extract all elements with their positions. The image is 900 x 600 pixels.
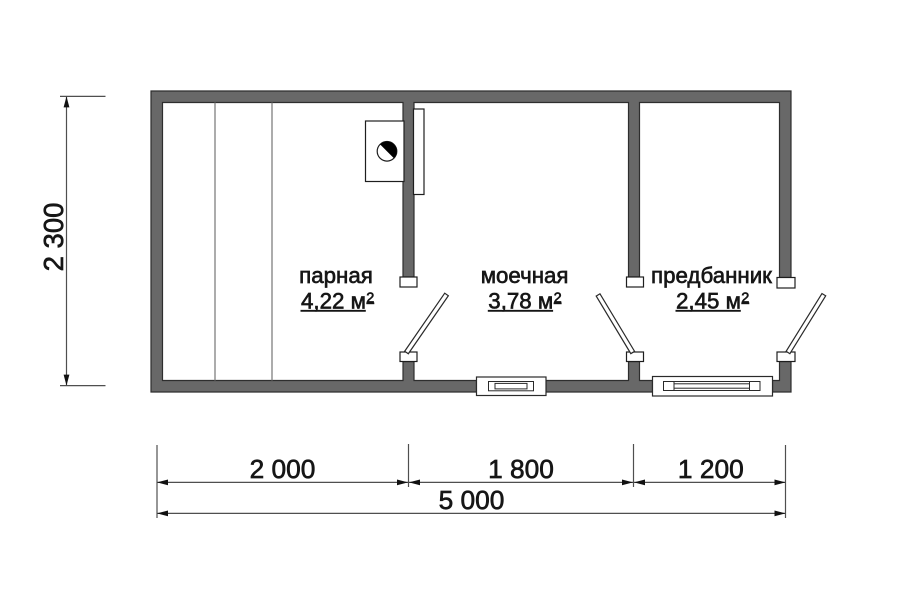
svg-text:1 800: 1 800 bbox=[488, 454, 554, 484]
svg-text:5 000: 5 000 bbox=[439, 485, 505, 515]
svg-text:2 000: 2 000 bbox=[250, 454, 316, 484]
svg-text:1 200: 1 200 bbox=[678, 454, 744, 484]
svg-text:4,22 м: 4,22 м bbox=[301, 289, 366, 314]
svg-text:3,78 м: 3,78 м bbox=[488, 289, 553, 314]
svg-text:2,45 м: 2,45 м bbox=[676, 289, 741, 314]
svg-text:моечная: моечная bbox=[481, 263, 569, 288]
svg-text:предбанник: предбанник bbox=[651, 263, 772, 288]
svg-text:2 300: 2 300 bbox=[38, 203, 69, 272]
svg-text:парная: парная bbox=[299, 263, 373, 288]
